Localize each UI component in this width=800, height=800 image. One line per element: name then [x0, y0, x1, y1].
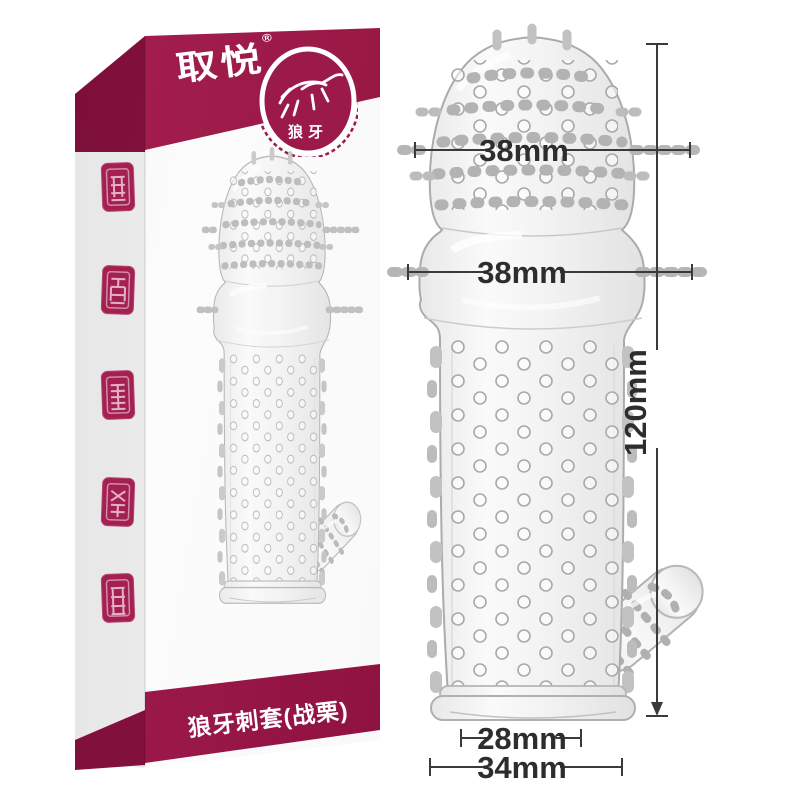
dimension-label-head-width: 38mm	[479, 133, 569, 168]
product-image	[392, 28, 720, 720]
box-product-illustration	[199, 150, 369, 603]
dimension-label-base-width: 34mm	[477, 750, 567, 785]
dimension-line-base-width: 34mm	[430, 750, 622, 785]
product-photo: 取悦® 狼牙 狼牙刺套(战栗)	[0, 0, 800, 800]
dimension-label-length: 120mm	[618, 349, 653, 456]
scene-overlay: 38mm 38mm 120mm 28mm 34mm	[0, 0, 800, 800]
dimension-label-bulge-width: 38mm	[477, 255, 567, 290]
